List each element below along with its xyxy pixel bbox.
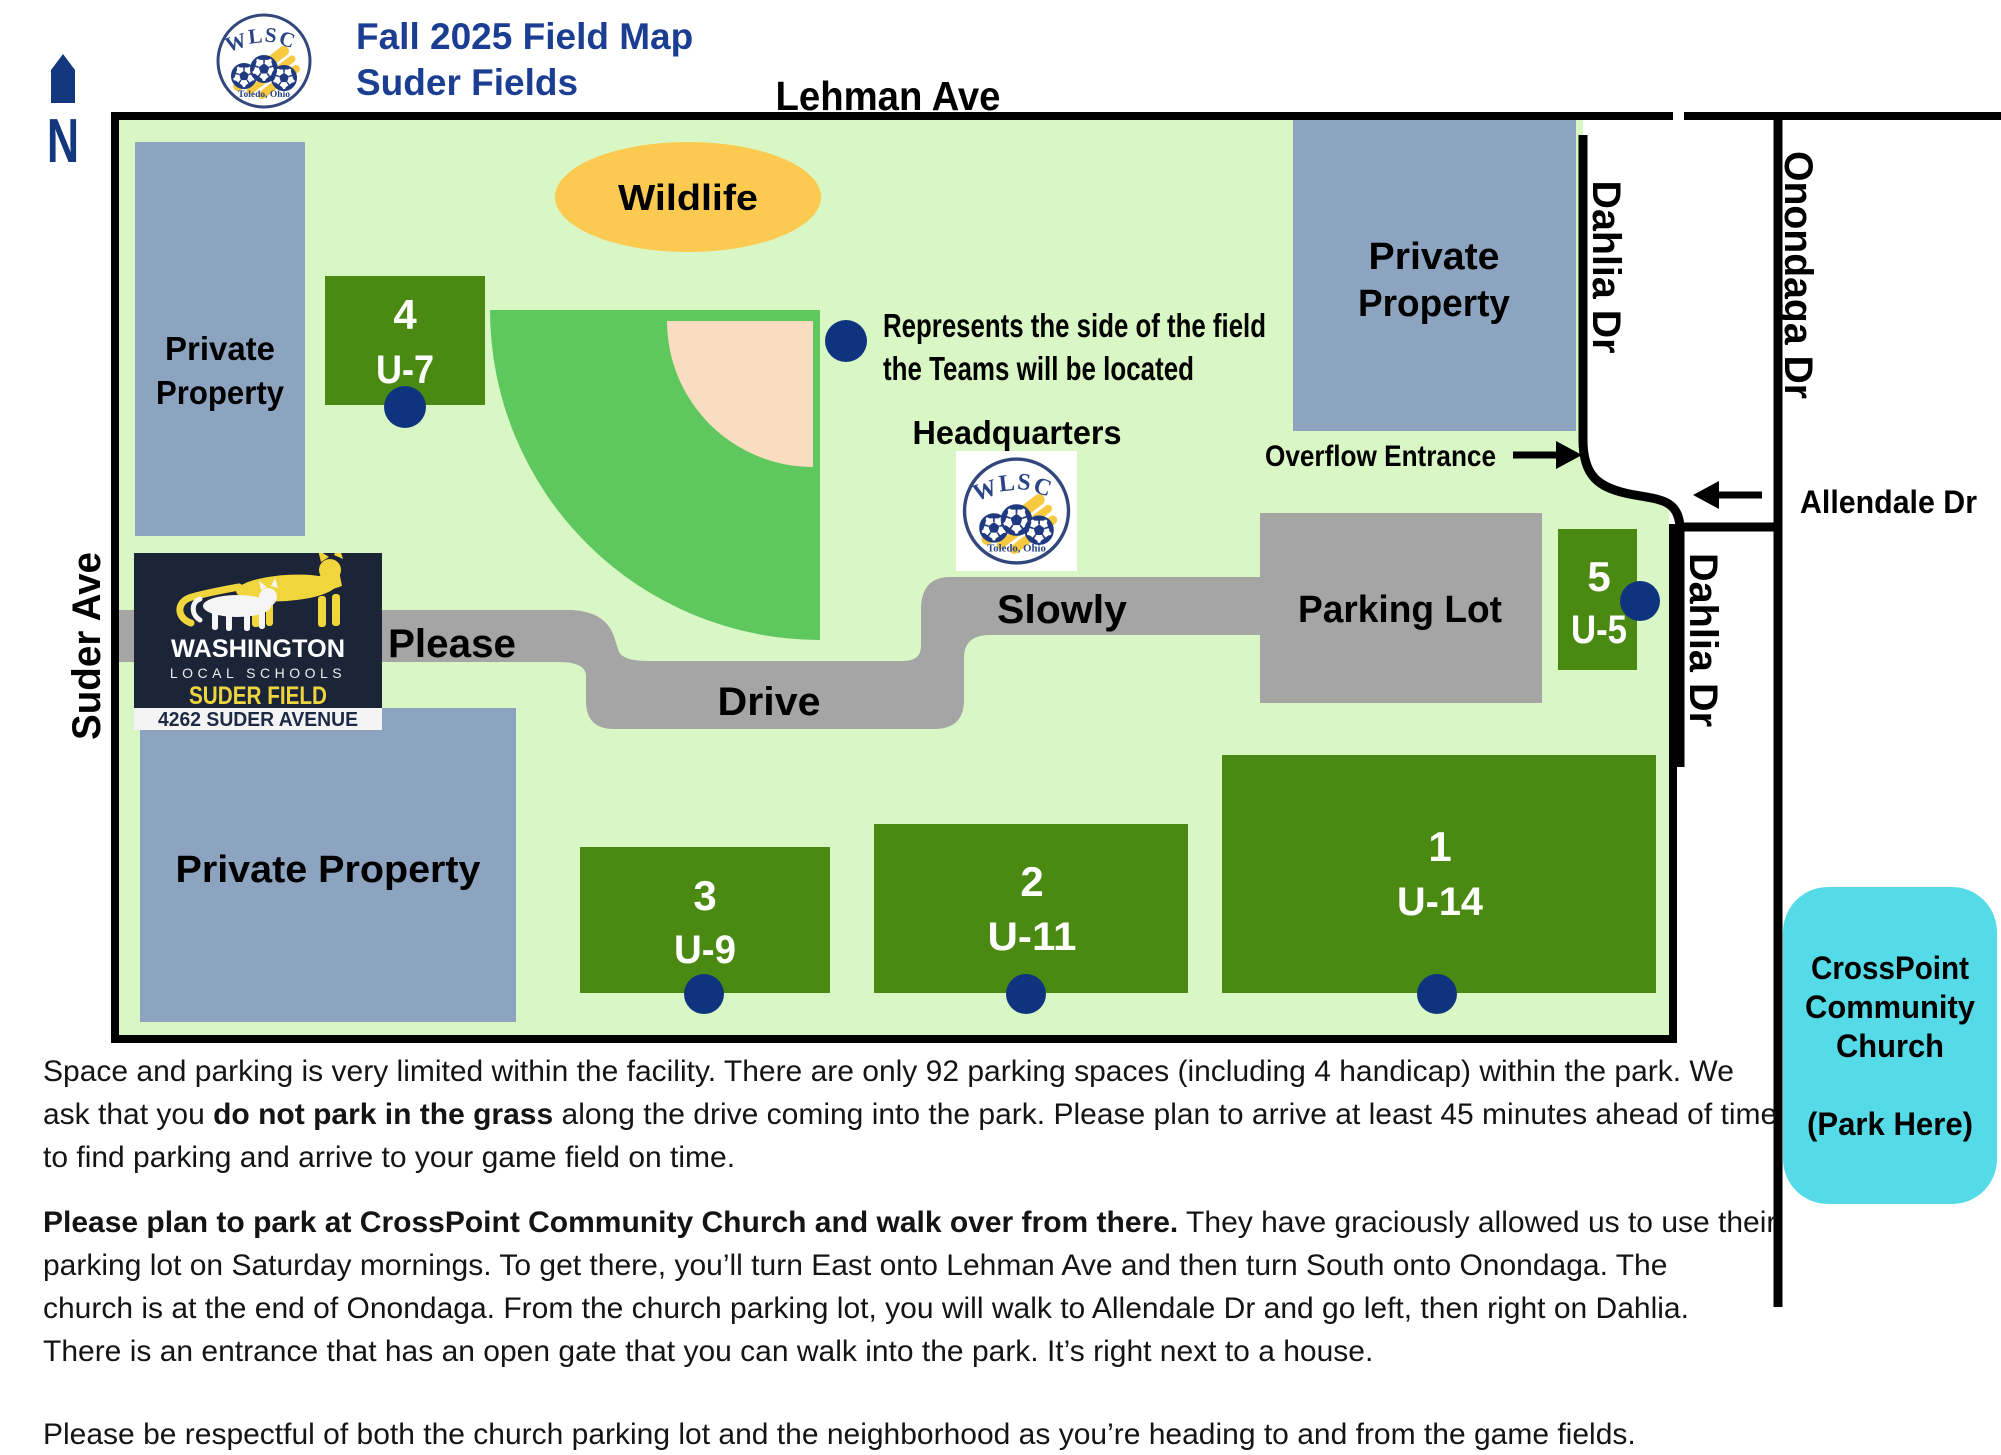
svg-text:U-7: U-7 [376, 348, 434, 392]
svg-text:Private: Private [165, 330, 275, 367]
svg-text:Wildlife: Wildlife [618, 177, 758, 218]
svg-text:LOCAL SCHOOLS: LOCAL SCHOOLS [170, 665, 346, 681]
svg-text:1: 1 [1428, 823, 1451, 870]
svg-text:Suder Fields: Suder Fields [356, 62, 578, 103]
svg-text:CrossPoint: CrossPoint [1811, 950, 1969, 986]
svg-text:Property: Property [1358, 283, 1510, 325]
svg-text:U-5: U-5 [1571, 608, 1627, 652]
svg-text:the Teams will be located: the Teams will be located [883, 350, 1194, 387]
svg-text:Overflow Entrance: Overflow Entrance [1265, 440, 1496, 473]
svg-text:Parking Lot: Parking Lot [1298, 589, 1502, 631]
svg-text:Property: Property [156, 374, 285, 411]
svg-text:U-9: U-9 [674, 928, 736, 972]
svg-text:Slowly: Slowly [997, 588, 1128, 632]
svg-text:SUDER FIELD: SUDER FIELD [189, 682, 327, 710]
svg-text:Onondaga Dr: Onondaga Dr [1776, 151, 1820, 399]
svg-text:Private: Private [1369, 236, 1500, 278]
svg-text:WASHINGTON: WASHINGTON [171, 635, 345, 663]
svg-text:Drive: Drive [718, 680, 821, 724]
svg-text:N: N [47, 107, 79, 176]
svg-text:5: 5 [1587, 553, 1610, 600]
svg-text:Private Property: Private Property [176, 849, 481, 891]
svg-text:Represents the side of the fie: Represents the side of the field [883, 307, 1266, 344]
svg-text:U-14: U-14 [1397, 880, 1484, 924]
svg-text:2: 2 [1020, 858, 1043, 905]
svg-text:4: 4 [393, 291, 417, 338]
svg-text:4262 SUDER AVENUE: 4262 SUDER AVENUE [158, 709, 358, 731]
svg-text:Dahlia Dr: Dahlia Dr [1681, 553, 1725, 727]
svg-text:Lehman Ave: Lehman Ave [776, 73, 1001, 119]
svg-text:Headquarters: Headquarters [913, 414, 1122, 451]
svg-text:Community: Community [1805, 989, 1975, 1025]
svg-text:Allendale Dr: Allendale Dr [1800, 484, 1977, 520]
svg-text:Fall 2025 Field Map: Fall 2025 Field Map [356, 16, 693, 57]
svg-text:Dahlia Dr: Dahlia Dr [1584, 181, 1628, 354]
svg-text:Suder Ave: Suder Ave [65, 552, 109, 740]
svg-text:Please: Please [388, 622, 516, 666]
svg-text:U-11: U-11 [988, 915, 1077, 959]
svg-text:3: 3 [693, 872, 716, 919]
